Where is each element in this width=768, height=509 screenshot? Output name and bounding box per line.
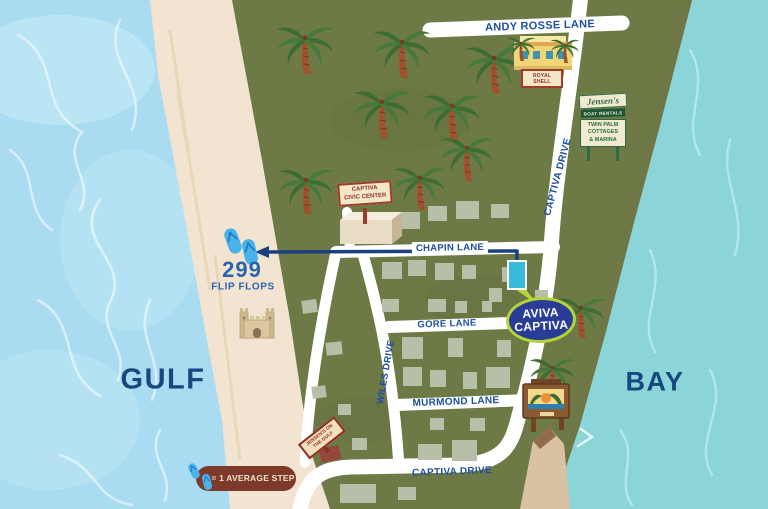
building-footprint (463, 372, 477, 389)
building-footprint (382, 299, 399, 312)
building-footprint (430, 370, 446, 387)
building-footprint (430, 418, 444, 430)
building-footprint (435, 263, 454, 280)
sign-post (616, 147, 619, 161)
building-footprint (452, 440, 477, 461)
jensens-marina-banner: BOAT RENTALS (581, 108, 625, 118)
building-footprint (482, 301, 492, 312)
road-label-gore-lane: GORE LANE (417, 317, 477, 330)
flip-flops-label: FLIP FLOPS (211, 282, 275, 293)
building-footprint (338, 404, 351, 415)
jensens-marina-line3: & MARINA (581, 137, 625, 144)
royal-shell-sign: ROYAL SHELL (521, 69, 563, 88)
building-footprint (402, 337, 423, 359)
jensens-marina-line1: TWIN PALM (581, 122, 625, 129)
building-footprint (462, 265, 476, 279)
building-footprint (340, 484, 376, 503)
civic-center-building-icon (340, 212, 402, 244)
jensens-marina-title: Jensen's (579, 93, 628, 109)
jensens-marina-line2: COTTAGES (581, 129, 625, 136)
building-footprint (448, 338, 463, 357)
building-footprint (428, 206, 447, 221)
building-footprint (428, 299, 446, 312)
building-footprint (497, 340, 511, 357)
building-footprint (489, 288, 502, 302)
building-footprint (311, 385, 327, 399)
captiva-island-map: GULF BAY ANDY ROSSE LANE CAPTIVA DRIVE C… (0, 0, 768, 509)
building-footprint (455, 301, 467, 313)
jensens-marina-sign: Jensen's BOAT RENTALS TWIN PALM COTTAGES… (579, 94, 627, 147)
building-footprint (403, 367, 422, 386)
building-footprint (456, 201, 479, 219)
aviva-line2: CAPTIVA (514, 319, 569, 335)
building-footprint (491, 204, 509, 218)
sign-post (363, 208, 367, 224)
civic-center-sign: CAPTIVA CIVIC CENTER (338, 182, 392, 205)
building-footprint (382, 262, 402, 279)
building-footprint (486, 367, 510, 388)
building-footprint (301, 299, 318, 314)
road-label-chapin-lane: CHAPIN LANE (412, 241, 488, 255)
building-footprint (352, 438, 367, 450)
building-footprint (418, 444, 442, 460)
jensens-marina-board: TWIN PALM COTTAGES & MARINA (580, 119, 626, 147)
building-footprint (470, 418, 485, 431)
map-artwork (0, 0, 768, 509)
gulf-label: GULF (121, 364, 206, 397)
legend-label: = 1 AVERAGE STEP (211, 473, 294, 483)
building-footprint (398, 487, 416, 500)
flip-flops-count: 299 (222, 257, 262, 283)
building-footprint (408, 260, 426, 276)
sign-post (587, 147, 590, 161)
civic-center-sign-board: CAPTIVA CIVIC CENTER (337, 180, 392, 207)
royal-shell-sign-text: ROYAL SHELL (521, 69, 563, 88)
aviva-building-icon (508, 261, 526, 289)
building-footprint (325, 341, 342, 356)
bay-label: BAY (625, 367, 684, 398)
